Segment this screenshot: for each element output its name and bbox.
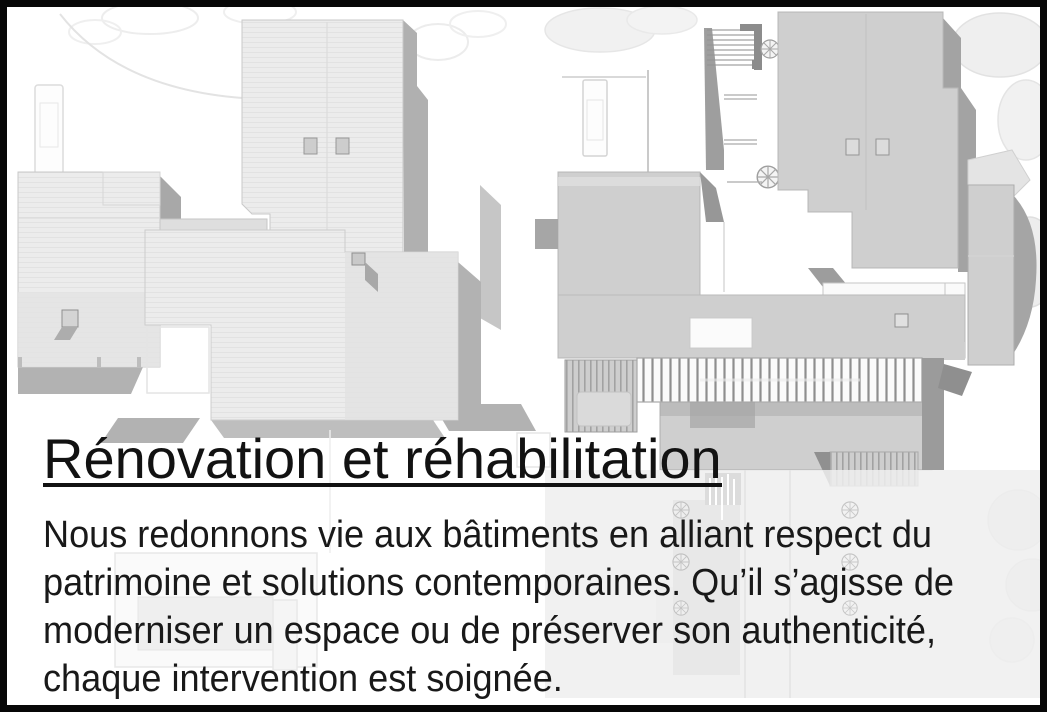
paragraph-line: Nous redonnons vie aux bâtiments en alli…	[43, 511, 954, 559]
page-title: Rénovation et réhabilitation	[43, 434, 722, 487]
section-heading-wrap: Rénovation et réhabilitation	[43, 434, 722, 487]
paragraph-line: moderniser un espace ou de préserver son…	[43, 607, 954, 655]
description-paragraph: Nous redonnons vie aux bâtiments en alli…	[43, 511, 954, 703]
paragraph-line: chaque intervention est soignée.	[43, 655, 954, 703]
paragraph-line: patrimoine et solutions contemporaines. …	[43, 559, 954, 607]
slide: Rénovation et réhabilitation Nous redonn…	[0, 0, 1047, 712]
